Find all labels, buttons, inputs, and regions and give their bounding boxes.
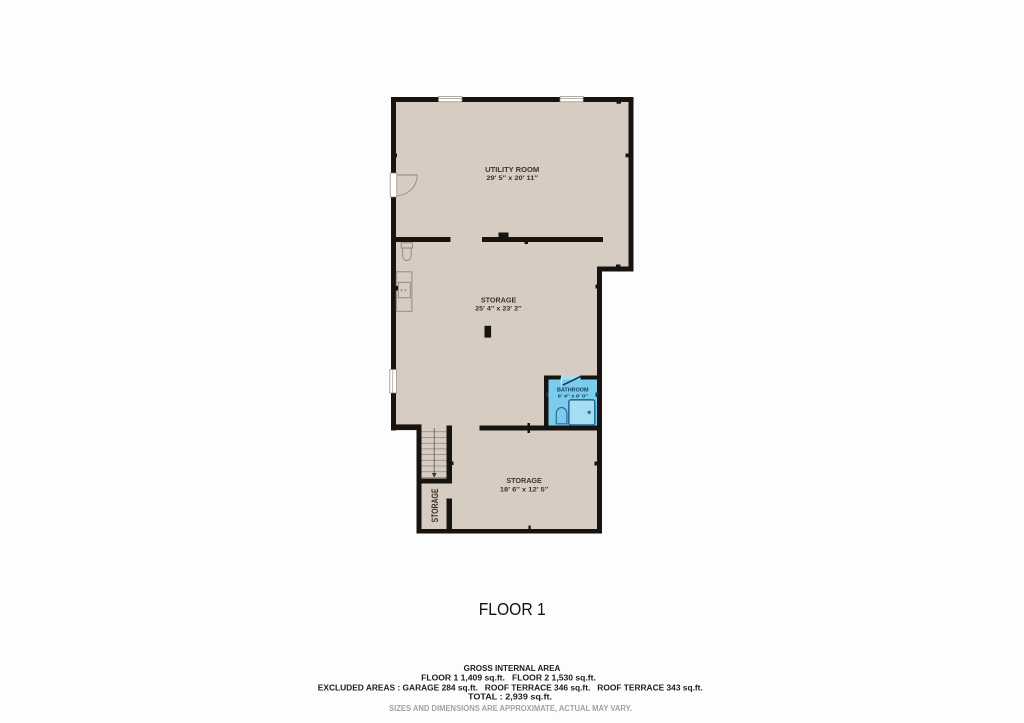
svg-text:FLOOR 1: FLOOR 1 [479,599,546,619]
svg-text:UTILITY ROOM: UTILITY ROOM [485,165,539,174]
svg-text:SIZES AND DIMENSIONS ARE APPRO: SIZES AND DIMENSIONS ARE APPROXIMATE, AC… [389,704,632,713]
svg-text:6′ 4″ x 6′ 0″: 6′ 4″ x 6′ 0″ [558,394,589,400]
svg-text:TOTAL : 2,939 sq.ft.: TOTAL : 2,939 sq.ft. [468,693,552,702]
svg-text:FLOOR 1 1,409 sq.ft. FLOOR 2: FLOOR 1 1,409 sq.ft. FLOOR 2 1,530 sq.ft… [421,674,596,683]
svg-text:BATHROOM: BATHROOM [557,388,589,394]
svg-text:STORAGE: STORAGE [481,295,517,304]
svg-text:18′ 6″ x 12′ 5″: 18′ 6″ x 12′ 5″ [500,487,549,494]
svg-text:STORAGE: STORAGE [506,476,542,485]
svg-text:GROSS INTERNAL AREA: GROSS INTERNAL AREA [464,664,561,673]
svg-text:25′ 4″ x 23′ 2″: 25′ 4″ x 23′ 2″ [475,305,522,312]
svg-text:EXCLUDED AREAS : GARAGE 284 s: EXCLUDED AREAS : GARAGE 284 sq.ft. ROOF … [318,684,703,693]
svg-text:29′ 5″ x 20′ 11″: 29′ 5″ x 20′ 11″ [486,175,538,182]
svg-text:STORAGE: STORAGE [430,489,440,523]
